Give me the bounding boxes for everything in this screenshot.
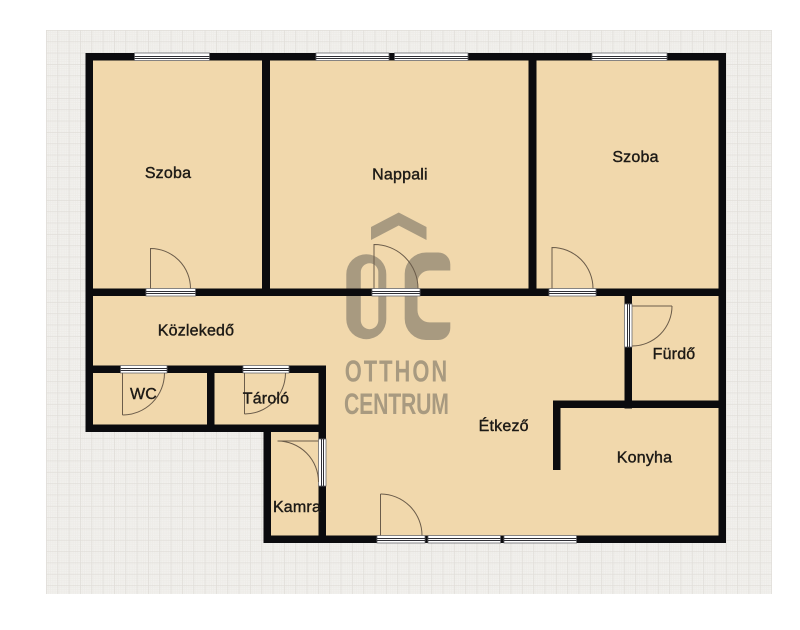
- svg-text:Fürdő: Fürdő: [653, 346, 696, 363]
- svg-text:Tároló: Tároló: [243, 391, 290, 408]
- svg-text:Konyha: Konyha: [617, 450, 672, 467]
- svg-text:WC: WC: [130, 386, 157, 403]
- svg-text:Szoba: Szoba: [145, 165, 191, 182]
- svg-text:Közlekedő: Közlekedő: [158, 323, 235, 340]
- svg-text:Étkező: Étkező: [479, 416, 529, 435]
- svg-text:Szoba: Szoba: [612, 149, 658, 166]
- svg-text:OTTHON: OTTHON: [345, 354, 448, 388]
- svg-text:Kamra: Kamra: [273, 499, 321, 516]
- svg-text:Nappali: Nappali: [372, 167, 428, 184]
- svg-text:CENTRUM: CENTRUM: [344, 389, 449, 421]
